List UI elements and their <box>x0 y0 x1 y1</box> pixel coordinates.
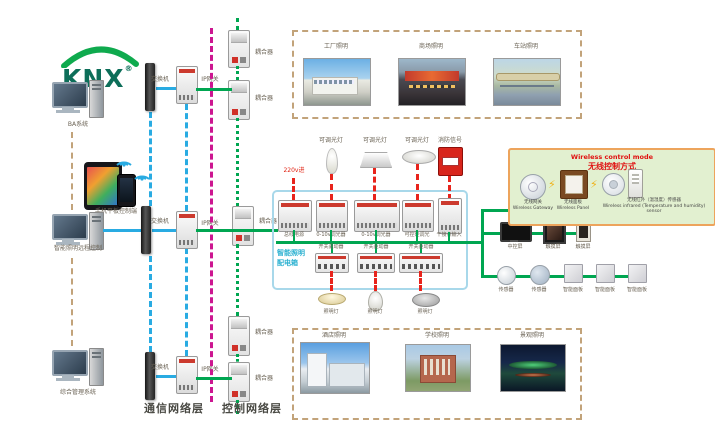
touch-screen-label: 触摸屏 <box>538 245 568 251</box>
coupler-label: 耦合器 <box>250 50 278 57</box>
dimmable-lamp-label: 可调光灯 <box>400 138 434 145</box>
coupler <box>228 80 250 120</box>
dimmable-lamp-label: 可调光灯 <box>316 138 346 145</box>
lamp-line <box>419 271 422 291</box>
ip-gateway <box>176 211 198 249</box>
coupler-label: 耦合器 <box>250 96 278 103</box>
wireless-gateway-en: Wireless Gateway <box>508 206 558 212</box>
wireless-branch-link <box>481 209 509 212</box>
smart-panel-icon <box>628 264 647 283</box>
gateway-coupler-link <box>196 88 232 91</box>
panel-name-line1: 智能照明 <box>277 249 311 259</box>
switch-driver-device <box>357 253 395 273</box>
smart-panel-label: 智能面板 <box>557 288 589 294</box>
monitor-base <box>56 110 80 113</box>
integrated-mgmt-computer <box>52 348 104 392</box>
knx-bus-line <box>236 118 239 206</box>
dimmable-lamp-label: 可调光灯 <box>358 138 392 145</box>
knx-bus-line <box>236 18 239 30</box>
photo-factory-lighting <box>303 58 371 106</box>
knx-bus-line <box>236 66 239 80</box>
school-lighting-label: 学校照明 <box>422 333 452 340</box>
lighting-remote-label: 智能照明远程控制 <box>38 246 118 253</box>
mall-lights <box>409 85 455 88</box>
fire-alarm-window <box>442 157 459 166</box>
communication-layer-label: 通信网络层 <box>144 400 204 416</box>
ethernet-switch <box>141 206 151 254</box>
touch-screen-label: 触摸屏 <box>568 245 598 251</box>
panel-name-line2: 配电箱 <box>277 259 311 269</box>
ethernet-switch <box>145 352 155 400</box>
lamp-line <box>330 271 333 291</box>
ba-system-label: BA系统 <box>52 122 104 129</box>
wireless-panel-keys <box>565 175 583 194</box>
bus-stub <box>293 230 295 241</box>
coupler <box>228 30 250 68</box>
bulb-icon <box>368 291 383 311</box>
power-in-label: 220v进 <box>276 168 312 175</box>
lamp-label: 照明灯 <box>410 310 440 316</box>
station-roof <box>496 73 560 81</box>
wireless-signal-icon: ⚡ <box>590 178 598 191</box>
wireless-panel-icon <box>560 170 588 199</box>
switch-driver-device <box>315 253 349 273</box>
coupler <box>228 362 250 402</box>
sensor-icon <box>497 266 516 285</box>
fire-alarm-icon <box>438 147 463 176</box>
tan-dashed-link <box>71 132 73 210</box>
dry-contact-device <box>438 198 462 234</box>
panel-name: 智能照明 配电箱 <box>277 249 311 269</box>
smart-panel-label: 智能面板 <box>589 288 621 294</box>
ip-gateway <box>176 66 198 104</box>
ip-gateway <box>176 356 198 394</box>
control-layer-label: 控制网络层 <box>222 400 282 416</box>
sensor-icon <box>530 265 550 285</box>
right-branch-line <box>481 210 484 278</box>
fire-signal-label: 消防信号 <box>434 138 466 145</box>
bus-stub <box>448 232 450 241</box>
photo-hotel-lighting <box>300 342 370 394</box>
photo-landscape-lighting <box>500 344 566 392</box>
lamp-line <box>330 174 333 200</box>
dimmer-0-10v-device <box>316 200 348 232</box>
central-screen-stand <box>510 240 518 242</box>
smart-panel-label: 智能面板 <box>621 288 653 294</box>
tan-dashed-link <box>71 258 73 346</box>
switch-driver-label: 开关驱动器 <box>398 245 444 251</box>
coupler <box>228 316 250 356</box>
wireless-ir-sensor-dome <box>609 180 618 189</box>
wireless-panel-en: Wireless Panel <box>552 206 594 212</box>
wireless-gateway-label: 无线网关 Wireless Gateway <box>508 200 558 212</box>
switch-driver-device <box>399 253 443 273</box>
phone-screen <box>120 178 133 202</box>
factory-windows <box>314 80 354 84</box>
station-lighting-label: 车站照明 <box>511 44 541 51</box>
ceiling-lamp-icon <box>318 293 346 305</box>
wireless-th-sensor-icon <box>628 169 643 198</box>
pc-switch-link <box>103 229 141 232</box>
bus-stub <box>330 230 332 241</box>
coupler-label: 耦合器 <box>250 376 278 383</box>
registered-mark: ® <box>125 64 134 73</box>
bus-power-device <box>278 200 312 232</box>
scr-dimmer-device <box>402 200 434 232</box>
spotlight-icon <box>412 293 440 307</box>
knx-bus-line <box>236 244 239 316</box>
sensor-label: 传感器 <box>491 288 521 294</box>
central-screen-label: 中控屏 <box>500 245 530 251</box>
lamp-label: 照明灯 <box>316 310 346 316</box>
dimmer-0-10v-device <box>354 200 400 232</box>
switch-gateway-link <box>156 375 176 378</box>
station-track <box>500 85 554 87</box>
wifi-icon <box>114 152 134 167</box>
wireless-title-en: Wireless control mode <box>510 153 714 161</box>
wireless-signal-icon: ⚡ <box>548 178 556 191</box>
downlight-icon <box>360 152 392 168</box>
photo-school-lighting <box>405 344 471 392</box>
factory-lighting-label: 工厂照明 <box>321 44 351 51</box>
lamp-line <box>374 271 377 291</box>
pc-tower-icon <box>89 348 104 386</box>
landscape-glow <box>509 361 557 369</box>
knx-lighting-system-diagram: KNX® BA系统 手机平板控制端 智能照明 <box>0 0 715 443</box>
wireless-ir-sensor-icon <box>602 173 625 196</box>
lamp-label: 照明灯 <box>360 310 390 316</box>
photo-mall-lighting <box>398 58 466 106</box>
mobile-tablet-group <box>84 158 154 210</box>
candle-bulb-icon <box>326 148 338 174</box>
switch-gateway-link <box>156 87 176 90</box>
wireless-control-box: Wireless control mode 无线控制方式 ⚡ ⚡ 无线网关 Wi… <box>508 148 715 226</box>
tablet-screen <box>87 167 119 205</box>
power-in-line <box>292 178 295 200</box>
photo-station-lighting <box>493 58 561 106</box>
switch-label: 交换机 <box>146 365 174 372</box>
touch-screen-display <box>547 225 562 240</box>
landscape-lighting-label: 景观照明 <box>517 333 547 340</box>
integrated-mgmt-label: 综合管理系统 <box>44 390 112 397</box>
monitor-icon <box>52 82 88 108</box>
wireless-title-zh: 无线控制方式 <box>510 161 714 172</box>
wireless-gateway-icon <box>520 174 546 200</box>
panel-light-icon <box>402 150 436 164</box>
mall-lighting-label: 商场照明 <box>416 44 446 51</box>
mall-signage <box>405 71 459 81</box>
ethernet-backbone <box>149 112 152 206</box>
switch-driver-label: 开关驱动器 <box>354 245 398 251</box>
wireless-sensor-label: 无线红外（温湿度）传感器 Wireless infrared (Temperat… <box>596 198 712 215</box>
monitor-icon <box>52 350 88 376</box>
switch-label: 交换机 <box>146 77 174 84</box>
layer-separator-line <box>210 28 213 402</box>
school-windows <box>424 359 450 375</box>
touch-screen-small-display <box>579 226 588 238</box>
wireless-th-sensor-vents <box>632 174 639 184</box>
gateway-backbone <box>185 248 188 356</box>
lamp-line <box>416 164 419 200</box>
switch-driver-label: 开关驱动器 <box>311 245 351 251</box>
switch-gateway-link <box>152 229 176 232</box>
ethernet-switch <box>145 63 155 111</box>
smart-panel-icon <box>564 264 583 283</box>
ethernet-backbone <box>149 256 152 352</box>
smart-panel-icon <box>596 264 615 283</box>
gateway-coupler-link <box>196 377 232 380</box>
hotel-lighting-label: 酒店照明 <box>319 333 349 340</box>
landscape-glow2 <box>515 373 551 377</box>
bus-stub <box>416 230 418 241</box>
hotel-wing <box>329 363 365 387</box>
pc-tower-icon <box>89 80 104 118</box>
wireless-gateway-ring <box>528 182 538 192</box>
hotel-tower <box>307 353 327 387</box>
lamp-line <box>373 168 376 200</box>
sensor-label: 传感器 <box>524 288 554 294</box>
monitor-icon <box>52 214 88 240</box>
fire-line <box>448 176 451 200</box>
gateway-backbone <box>185 104 188 211</box>
wireless-panel-label: 无线面板 Wireless Panel <box>552 200 594 212</box>
wireless-sensor-en: Wireless infrared (Temperature and humid… <box>596 204 712 215</box>
monitor-base <box>56 378 80 381</box>
switch-label: 交换机 <box>146 219 174 226</box>
bus-stub <box>375 230 377 241</box>
knx-bus-line <box>236 354 239 362</box>
coupler <box>232 206 254 246</box>
coupler-label: 耦合器 <box>250 330 278 337</box>
gateway-coupler-link <box>196 229 278 232</box>
ba-system-computer <box>52 80 104 124</box>
